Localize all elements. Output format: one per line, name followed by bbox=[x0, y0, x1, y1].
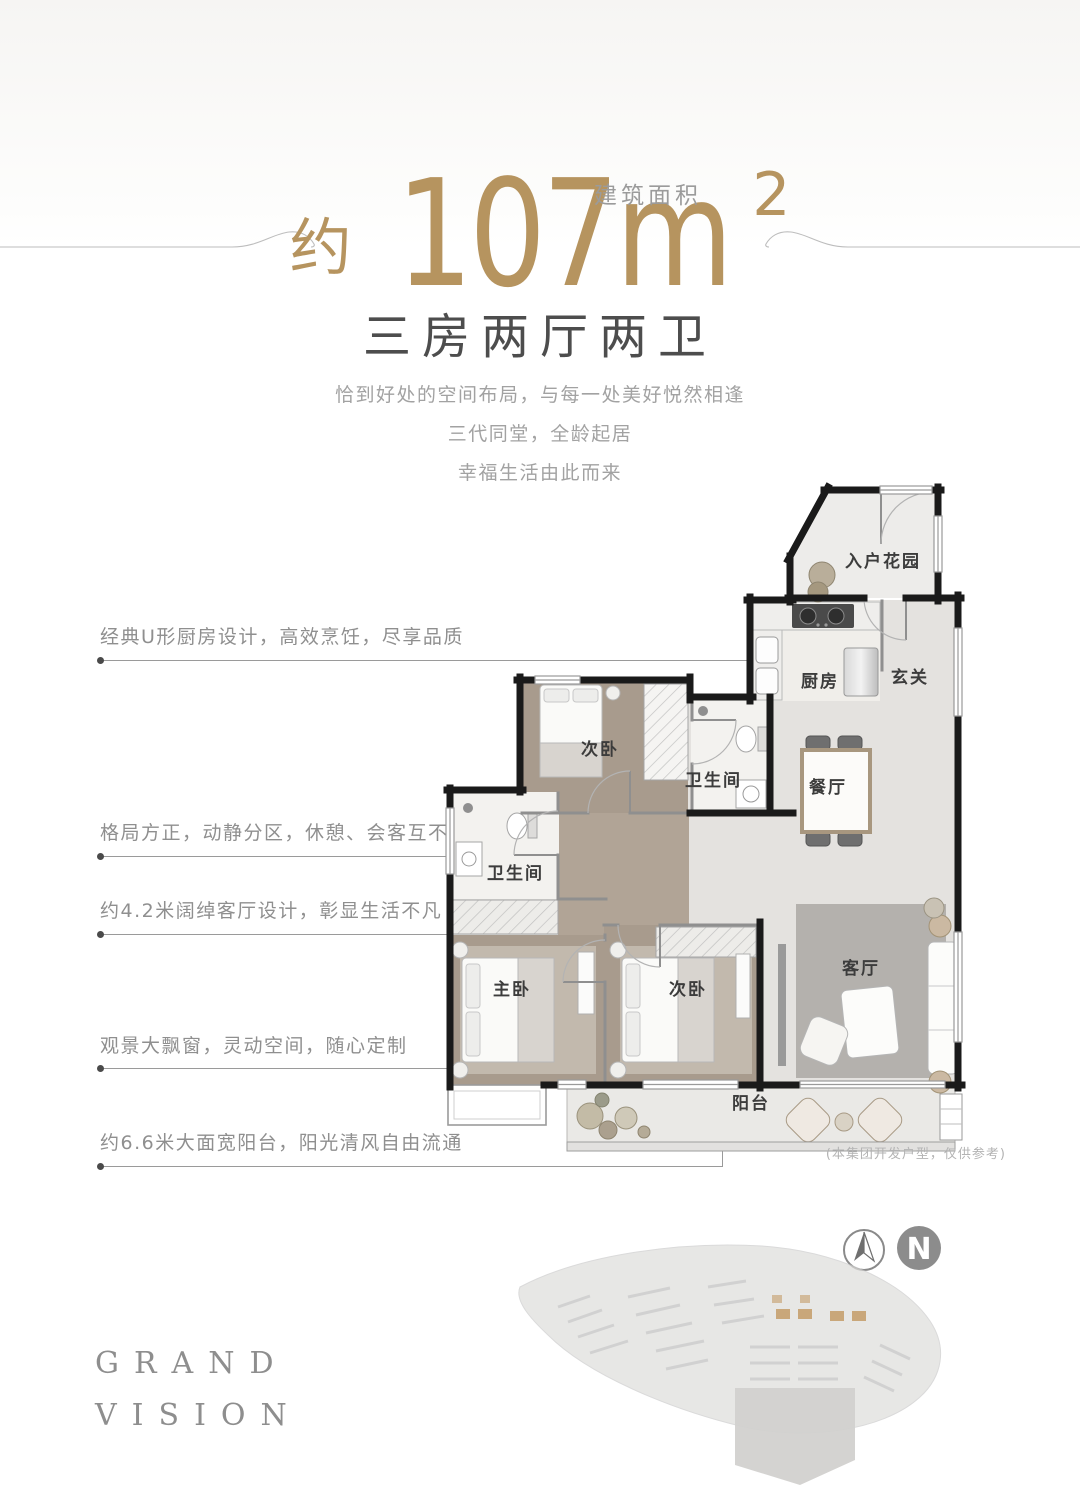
room-label-bedroom-3: 次卧 bbox=[669, 975, 707, 1000]
room-label-kitchen: 厨房 bbox=[801, 667, 839, 692]
description: 恰到好处的空间布局，与每一处美好悦然相逢 三代同堂，全龄起居 幸福生活由此而来 bbox=[0, 376, 1080, 493]
callout-balcony: 约6.6米大面宽阳台，阳光清风自由流通 bbox=[100, 1128, 463, 1155]
brand-mark: GRAND VISION bbox=[95, 1338, 302, 1442]
area-label: 建筑面积 bbox=[594, 176, 702, 210]
approx-prefix: 约 bbox=[290, 211, 352, 284]
room-label-balcony: 阳台 bbox=[732, 1089, 770, 1114]
room-label-master-bedroom: 主卧 bbox=[493, 975, 531, 1000]
callout-baywindow: 观景大飘窗，灵动空间，随心定制 bbox=[100, 1031, 408, 1058]
room-label-foyer: 玄关 bbox=[891, 663, 929, 688]
brand-line-1: GRAND bbox=[95, 1338, 302, 1390]
area-title: 约107m2 bbox=[0, 160, 1080, 308]
room-label-bathroom-2: 卫生间 bbox=[487, 859, 544, 884]
bay-window bbox=[448, 1085, 546, 1125]
callout-livingroom: 约4.2米阔绰客厅设计，彰显生活不凡 bbox=[100, 896, 442, 923]
site-map bbox=[500, 1225, 980, 1507]
room-label-living-room: 客厅 bbox=[842, 954, 880, 979]
room-label-bathroom-1: 卫生间 bbox=[685, 766, 742, 791]
room-label-dining: 餐厅 bbox=[809, 773, 847, 798]
description-line-1: 恰到好处的空间布局，与每一处美好悦然相逢 bbox=[0, 376, 1080, 415]
room-label-bedroom-2: 次卧 bbox=[581, 735, 619, 760]
room-label-entry-garden: 入户花园 bbox=[845, 547, 921, 572]
description-line-2: 三代同堂，全龄起居 bbox=[0, 415, 1080, 454]
callout-layout: 格局方正，动静分区，休憩、会客互不干扰 bbox=[100, 818, 490, 845]
callout-kitchen: 经典U形厨房设计，高效烹饪，尽享品质 bbox=[100, 622, 464, 649]
site-map-parcel bbox=[735, 1388, 855, 1485]
poster-page: 约107m2 建筑面积 三房两厅两卫 恰到好处的空间布局，与每一处美好悦然相逢 … bbox=[0, 0, 1080, 1507]
layout-subtitle: 三房两厅两卫 bbox=[0, 297, 1080, 367]
area-superscript: 2 bbox=[752, 160, 790, 230]
disclaimer: (本集团开发户型，仅供参考) bbox=[826, 1143, 1006, 1162]
brand-line-2: VISION bbox=[95, 1390, 302, 1442]
floor-plan bbox=[440, 480, 970, 1170]
